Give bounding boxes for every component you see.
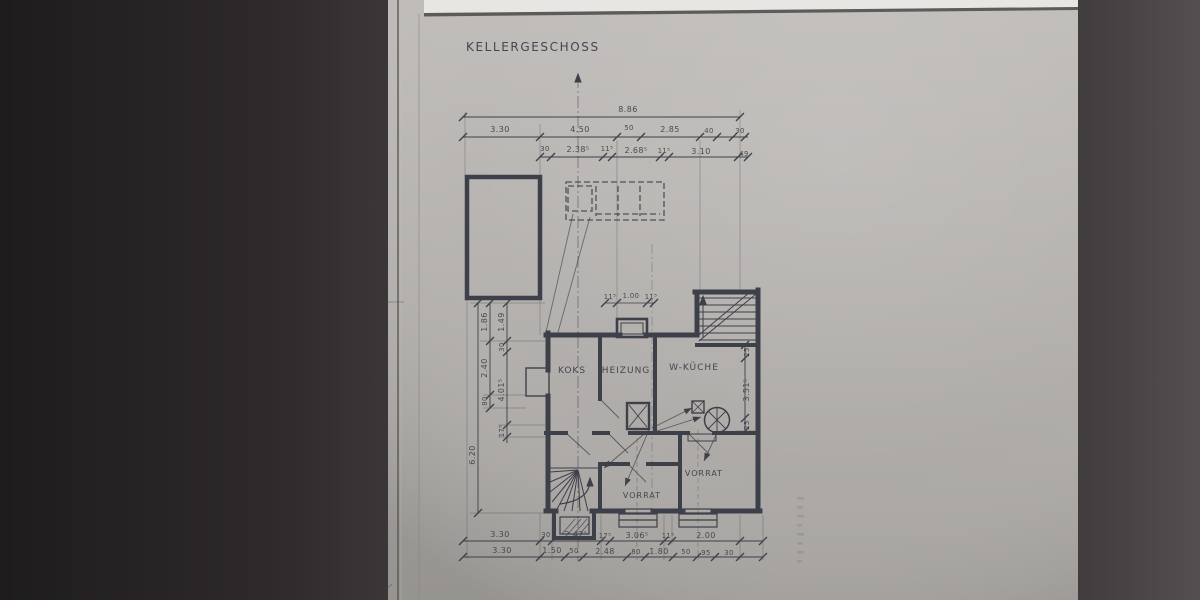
- dim-text: 30: [498, 342, 506, 351]
- dim-text: 80: [631, 548, 640, 556]
- dim-text: 1.50: [542, 546, 561, 555]
- dim-text: 95: [701, 549, 710, 557]
- dim-text: 11⁵: [658, 147, 671, 155]
- dim-text: 2.85: [660, 125, 679, 134]
- dim-text: 2.38⁵: [566, 145, 589, 154]
- dim-text: 30: [541, 531, 550, 539]
- dim-text: 2.40: [480, 358, 489, 377]
- dim-text: 3.51⁵: [742, 378, 751, 401]
- dim-right-chain: 25 3.51⁵ 25: [741, 341, 751, 435]
- dim-text: 2.68⁵: [624, 146, 647, 155]
- dim-text: 30: [724, 549, 733, 557]
- dim-text: 4.50: [570, 125, 589, 134]
- room-label-vorrat-right: VORRAT: [685, 469, 723, 478]
- room-label-koks: KOKS: [558, 366, 586, 376]
- dim-text: 11⁵: [601, 145, 614, 153]
- room-label-heizung: HEIZUNG: [602, 366, 651, 376]
- dim-text: 17⁵: [599, 532, 612, 540]
- dim-text: 25: [743, 420, 751, 429]
- dim-text: 49: [739, 150, 748, 158]
- dim-text: 11⁵: [645, 293, 658, 301]
- dim-text: 2.00: [696, 531, 715, 540]
- dim-text: 6.20: [468, 445, 477, 464]
- dim-text: 40: [704, 127, 713, 135]
- floor-plan-drawing: KELLERGESCHOSS: [0, 0, 1200, 600]
- dim-text: 4.01⁵: [497, 378, 506, 401]
- dim-text: 1.86: [480, 312, 489, 331]
- dim-overall-text: 8.86: [618, 105, 637, 114]
- dim-text: 17⁵: [498, 425, 506, 438]
- dim-text: 50: [624, 124, 633, 132]
- dim-text: 30: [735, 127, 744, 135]
- dim-text: 50: [569, 547, 578, 555]
- dim-text: 30: [540, 145, 549, 153]
- dim-text: 1.00: [623, 292, 640, 300]
- dim-text: 1.49: [497, 312, 506, 331]
- dim-text: 50: [681, 548, 690, 556]
- dim-text: 3.30: [492, 546, 511, 555]
- drawing-title: KELLERGESCHOSS: [466, 40, 600, 54]
- photographed-floor-plan: KELLERGESCHOSS: [0, 0, 1200, 600]
- dim-text: 3.30: [490, 530, 509, 539]
- dim-text: 80: [481, 396, 489, 405]
- dim-text: 3.30: [490, 125, 509, 134]
- room-label-wkueche: W-KÜCHE: [669, 362, 719, 373]
- dim-text: 2.48: [595, 547, 614, 556]
- dim-text: 2.42⁵: [564, 530, 587, 539]
- dim-text: 11⁵: [604, 293, 617, 301]
- dim-text: 3.06⁵: [625, 531, 648, 540]
- dark-left-band: [0, 0, 390, 600]
- dim-text: 1.80: [649, 547, 668, 556]
- dim-text: 3.10: [691, 147, 710, 156]
- dark-right-band: [1078, 0, 1200, 600]
- dim-text: 25: [743, 347, 751, 356]
- room-label-vorrat-center: VORRAT: [623, 491, 661, 500]
- dim-text: 11⁵: [662, 532, 675, 540]
